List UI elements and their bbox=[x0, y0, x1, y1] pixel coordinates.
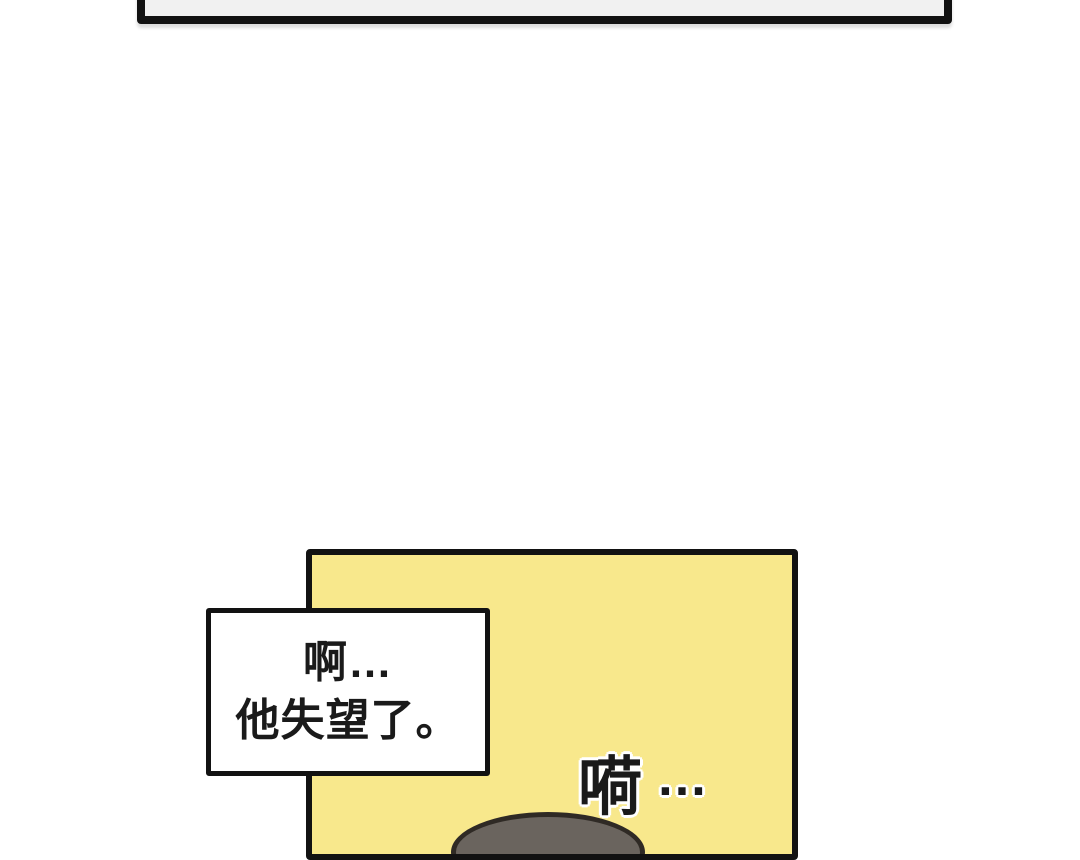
panel-top-partial bbox=[137, 0, 952, 24]
narration-line-2: 他失望了。 bbox=[236, 692, 461, 750]
sfx-ellipsis: … bbox=[656, 748, 714, 808]
sfx-text: 嗬… bbox=[578, 736, 714, 828]
sfx-char: 嗬 bbox=[578, 751, 642, 823]
narration-line-1: 啊… bbox=[303, 634, 393, 692]
narration-box: 啊… 他失望了。 bbox=[206, 608, 490, 776]
